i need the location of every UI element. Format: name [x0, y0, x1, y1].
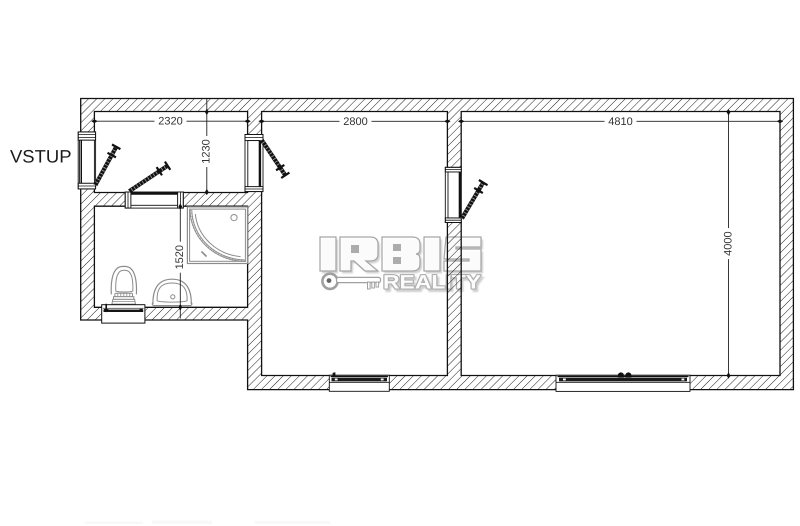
- svg-text:2800: 2800: [343, 116, 367, 128]
- svg-text:1520: 1520: [174, 245, 186, 269]
- svg-text:4810: 4810: [608, 116, 632, 128]
- svg-text:1230: 1230: [200, 139, 212, 163]
- svg-text:2320: 2320: [158, 116, 182, 128]
- svg-text:VSTUP: VSTUP: [10, 146, 72, 166]
- svg-text:REALITY: REALITY: [383, 271, 481, 293]
- svg-text:4000: 4000: [723, 231, 735, 255]
